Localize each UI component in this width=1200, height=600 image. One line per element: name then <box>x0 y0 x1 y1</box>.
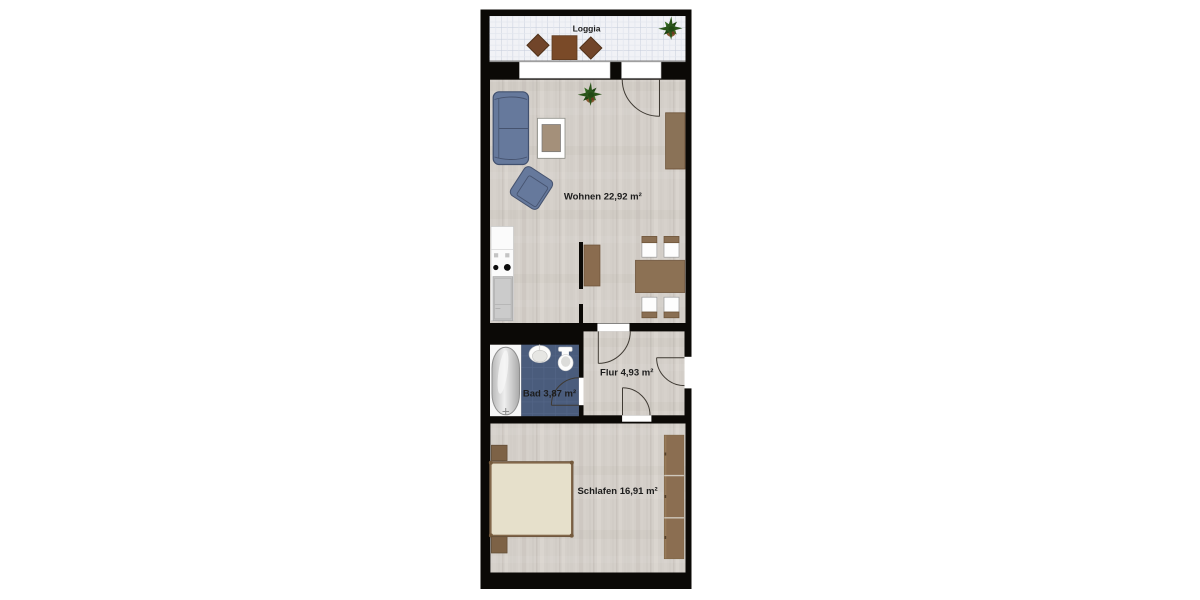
svg-text:Wohnen 22,92 m²: Wohnen 22,92 m² <box>564 191 642 202</box>
svg-text:Bad 3,87 m²: Bad 3,87 m² <box>523 388 576 399</box>
svg-text:Schlafen 16,91 m²: Schlafen 16,91 m² <box>577 486 657 497</box>
svg-text:Loggia: Loggia <box>573 23 601 33</box>
svg-text:Flur 4,93 m²: Flur 4,93 m² <box>600 367 653 378</box>
